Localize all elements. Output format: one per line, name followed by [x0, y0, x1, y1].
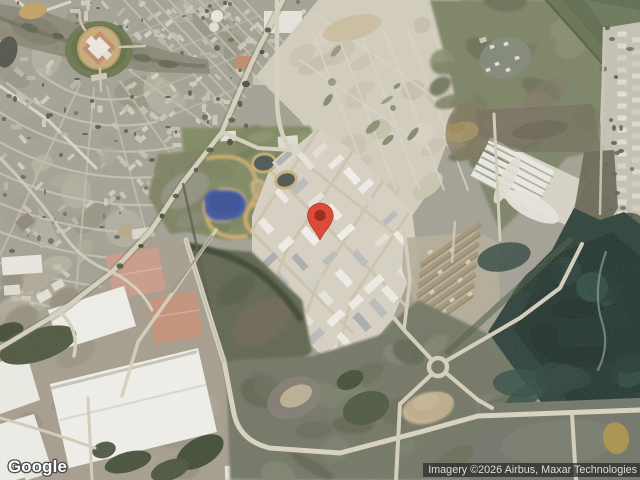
svg-text:Google: Google	[8, 457, 67, 476]
